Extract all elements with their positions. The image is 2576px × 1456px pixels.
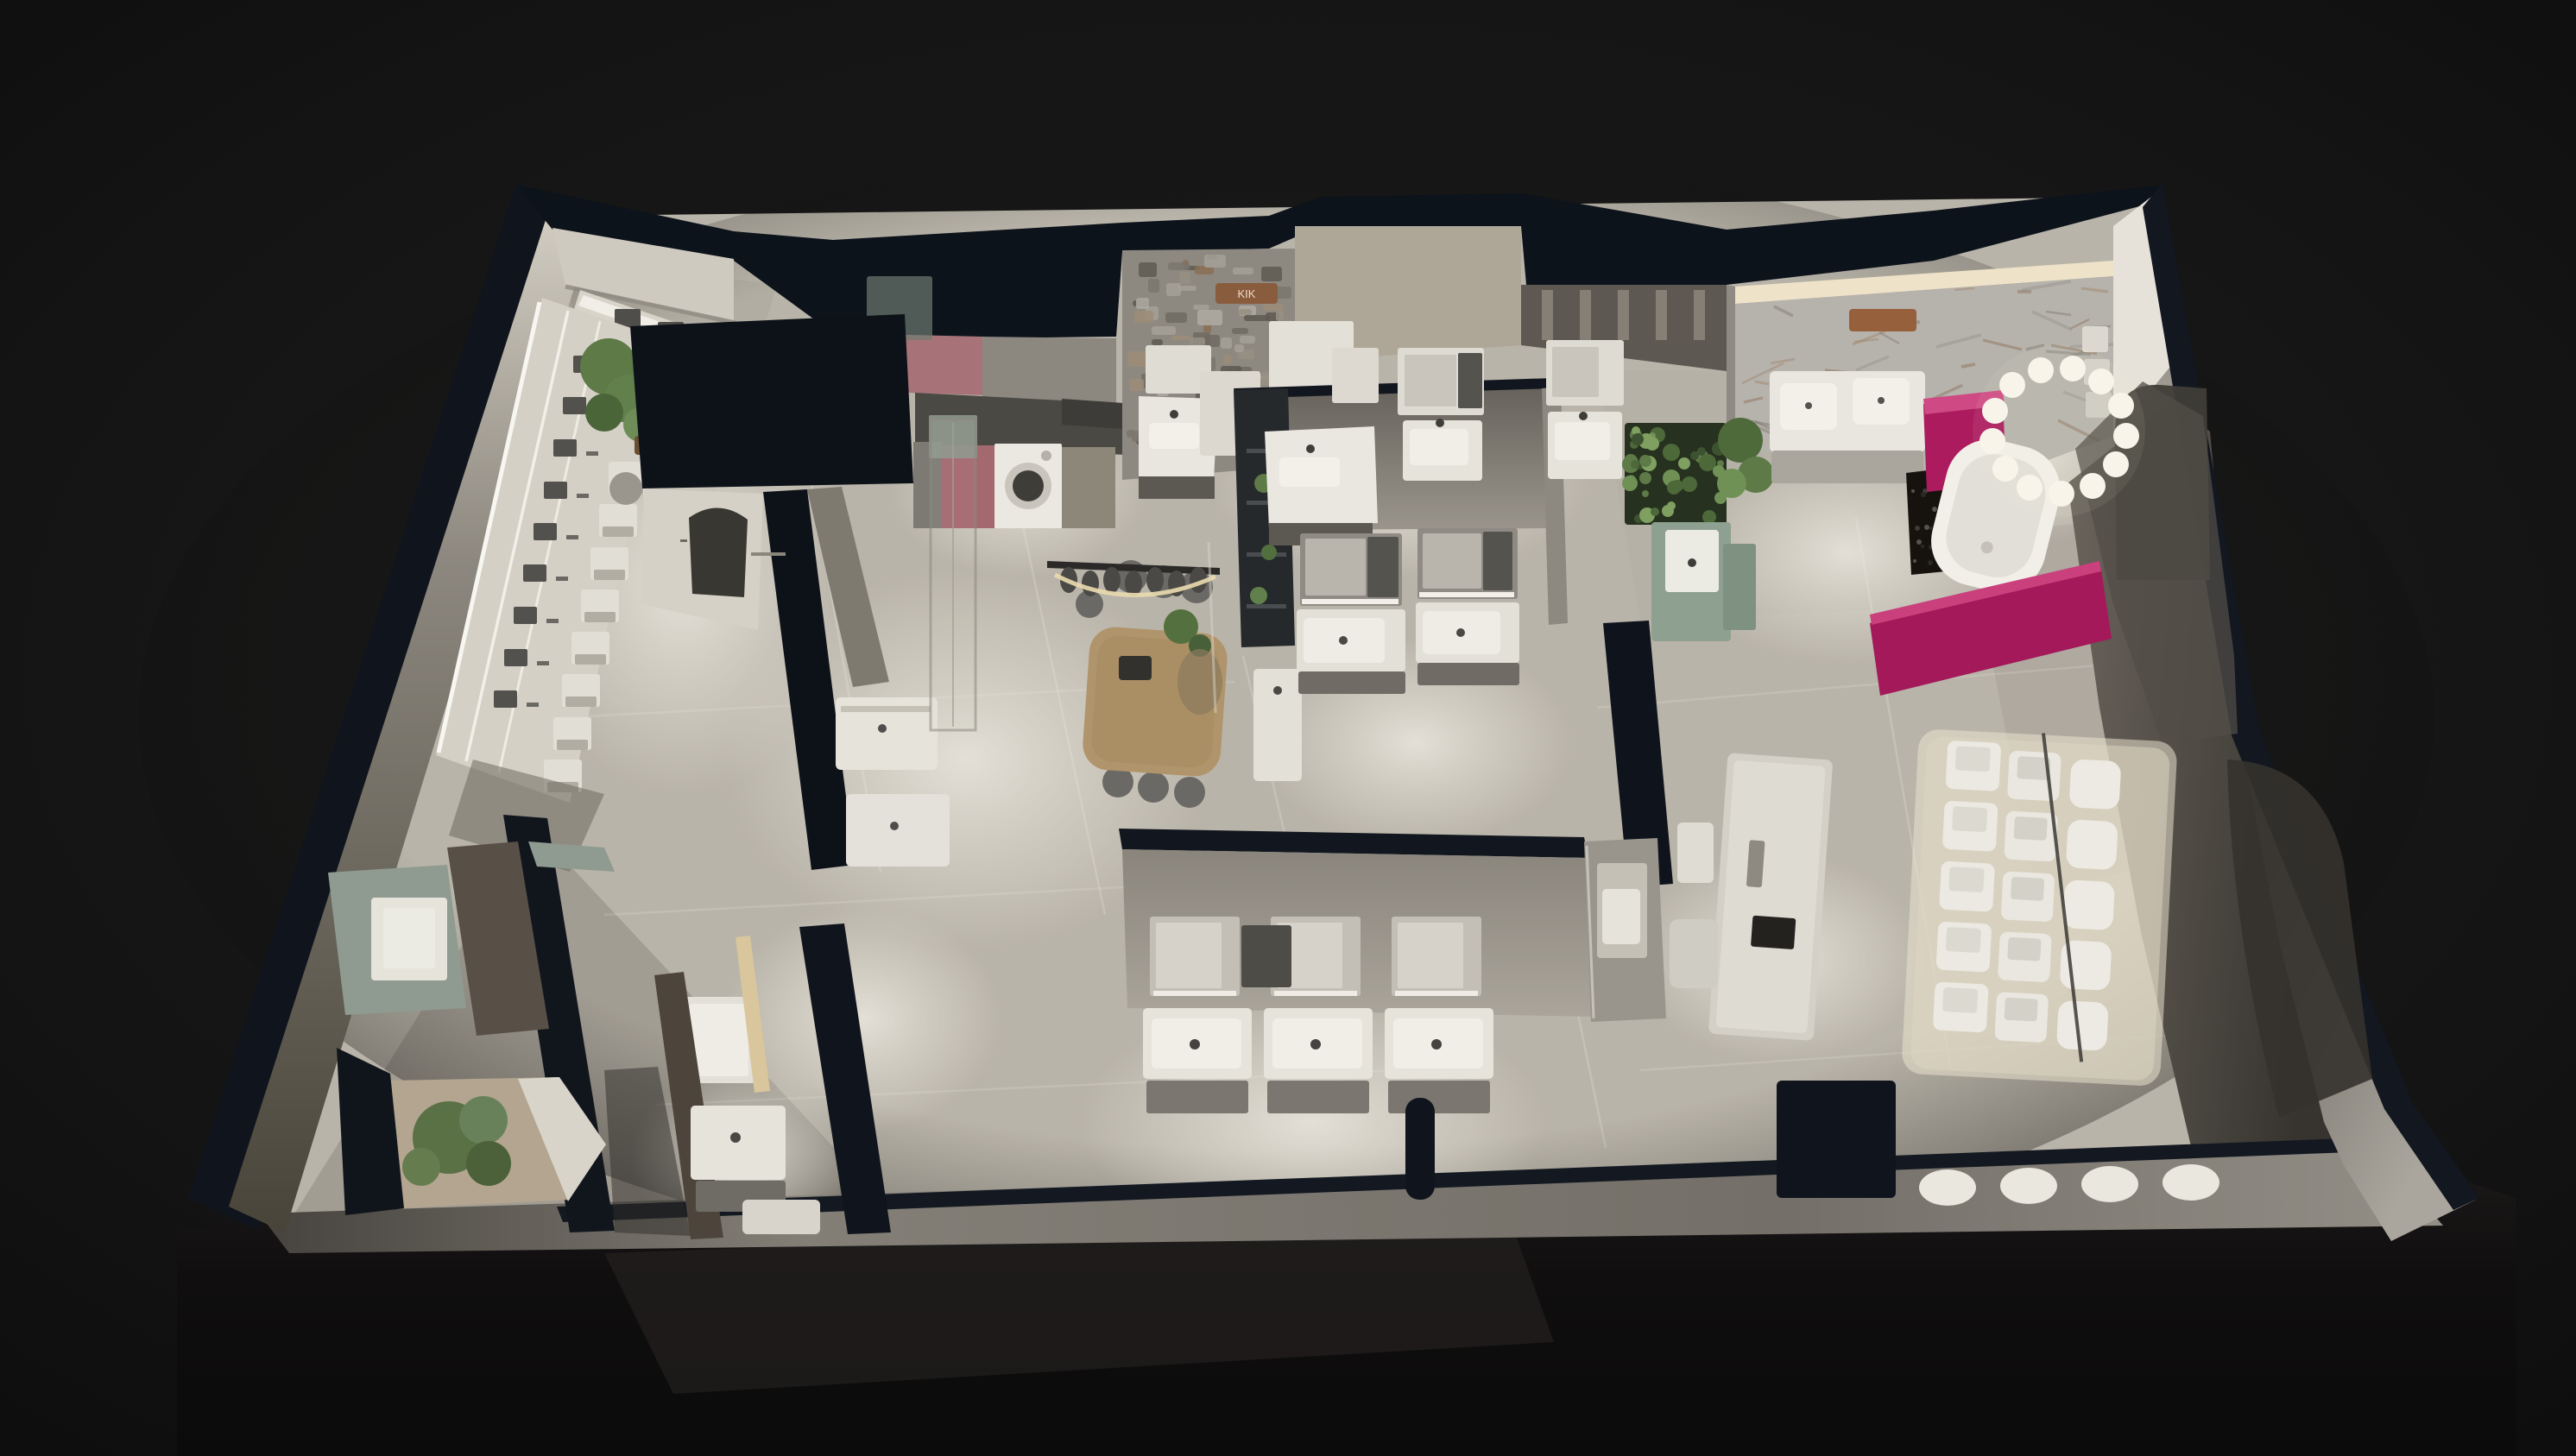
svg-text:KIK: KIK — [1238, 287, 1256, 300]
